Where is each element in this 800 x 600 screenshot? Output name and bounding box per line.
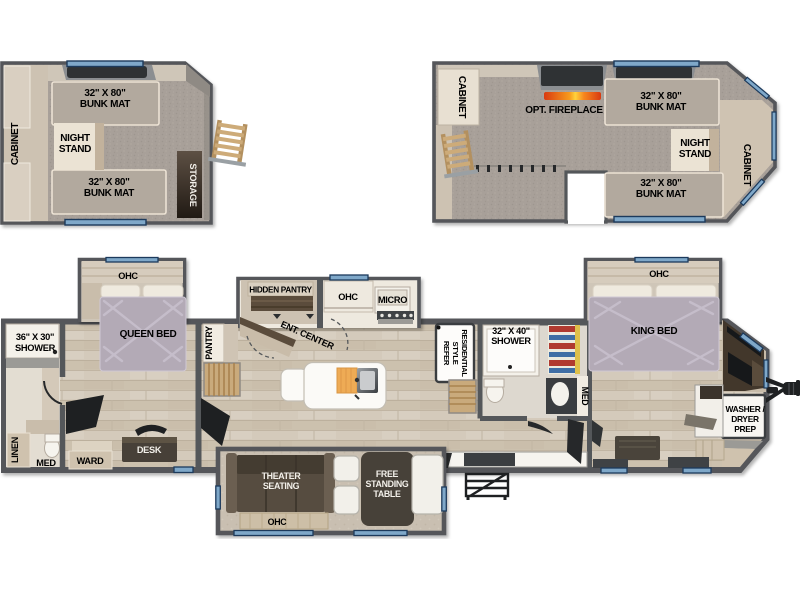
svg-text:CABINET: CABINET bbox=[10, 123, 21, 166]
svg-text:MED: MED bbox=[580, 387, 590, 406]
svg-text:32" X 80": 32" X 80" bbox=[84, 88, 126, 99]
svg-text:RESIDENTIAL: RESIDENTIAL bbox=[460, 329, 469, 377]
svg-text:36" X 30": 36" X 30" bbox=[16, 332, 54, 342]
svg-text:BUNK MAT: BUNK MAT bbox=[84, 188, 134, 199]
svg-text:PREP: PREP bbox=[734, 424, 756, 434]
svg-text:32" X 80": 32" X 80" bbox=[640, 178, 682, 189]
svg-text:OHC: OHC bbox=[649, 269, 669, 279]
svg-text:DRYER: DRYER bbox=[731, 414, 759, 424]
svg-text:QUEEN BED: QUEEN BED bbox=[120, 329, 177, 340]
svg-text:CABINET: CABINET bbox=[456, 76, 467, 119]
svg-text:MICRO: MICRO bbox=[378, 295, 407, 305]
svg-text:SEATING: SEATING bbox=[263, 481, 300, 491]
svg-text:WARD: WARD bbox=[77, 456, 105, 466]
svg-text:STAND: STAND bbox=[59, 144, 91, 155]
svg-text:TABLE: TABLE bbox=[373, 489, 401, 499]
svg-text:REFER: REFER bbox=[442, 341, 451, 366]
svg-text:STAND: STAND bbox=[679, 149, 711, 160]
svg-text:DESK: DESK bbox=[137, 445, 162, 455]
svg-text:BUNK MAT: BUNK MAT bbox=[636, 102, 686, 113]
svg-text:PANTRY: PANTRY bbox=[204, 326, 214, 360]
svg-text:OHC: OHC bbox=[338, 292, 358, 302]
svg-text:STYLE: STYLE bbox=[451, 342, 460, 365]
svg-text:OPT. FIREPLACE: OPT. FIREPLACE bbox=[525, 105, 603, 116]
svg-text:SHOWER: SHOWER bbox=[15, 343, 56, 353]
svg-text:STORAGE: STORAGE bbox=[188, 163, 198, 206]
svg-text:THEATER: THEATER bbox=[262, 471, 302, 481]
svg-text:KING BED: KING BED bbox=[631, 326, 678, 337]
svg-text:MED: MED bbox=[36, 458, 56, 468]
svg-text:SHOWER: SHOWER bbox=[491, 336, 531, 346]
svg-text:CABINET: CABINET bbox=[741, 144, 752, 187]
svg-text:BUNK MAT: BUNK MAT bbox=[80, 99, 130, 110]
svg-text:STANDING: STANDING bbox=[366, 479, 409, 489]
svg-text:OHC: OHC bbox=[268, 517, 288, 527]
svg-text:32" X 80": 32" X 80" bbox=[88, 177, 130, 188]
svg-text:FREE: FREE bbox=[376, 469, 399, 479]
svg-text:BUNK MAT: BUNK MAT bbox=[636, 189, 686, 200]
svg-text:HIDDEN PANTRY: HIDDEN PANTRY bbox=[249, 286, 312, 295]
svg-text:32" X 40": 32" X 40" bbox=[492, 326, 530, 336]
svg-text:NIGHT: NIGHT bbox=[60, 133, 90, 144]
svg-text:LINEN: LINEN bbox=[10, 436, 20, 463]
svg-text:NIGHT: NIGHT bbox=[680, 138, 710, 149]
svg-text:WASHER /: WASHER / bbox=[725, 404, 765, 414]
svg-text:32" X 80": 32" X 80" bbox=[640, 91, 682, 102]
svg-text:OHC: OHC bbox=[118, 271, 138, 281]
